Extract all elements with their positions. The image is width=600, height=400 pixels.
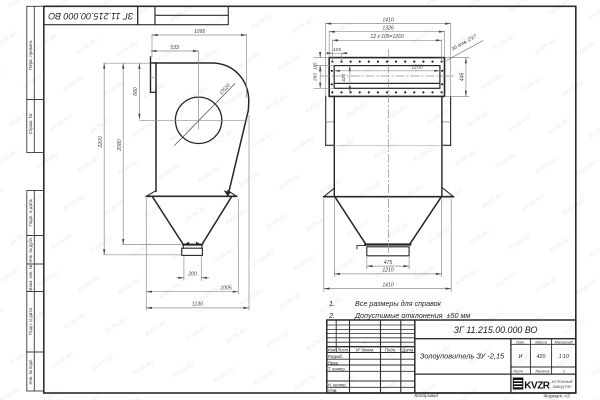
svg-text:КОТЕЛЬНЫЙ: КОТЕЛЬНЫЙ (552, 380, 573, 384)
svg-text:Подп. и дата: Подп. и дата (28, 199, 33, 227)
svg-text:Лист: Лист (512, 369, 524, 374)
svg-text:Формат А3: Формат А3 (543, 393, 570, 399)
svg-text:12 х 105=1260: 12 х 105=1260 (370, 34, 403, 40)
svg-text:Перв. примен.: Перв. примен. (28, 40, 33, 71)
svg-text:1:10: 1:10 (559, 354, 569, 360)
svg-text:446: 446 (459, 73, 465, 82)
svg-text:ЗГ 11.215.00.000 ВО: ЗГ 11.215.00.000 ВО (454, 325, 538, 335)
svg-text:1.: 1. (329, 299, 335, 308)
svg-text:KVZR: KVZR (524, 380, 551, 391)
svg-text:Утв.: Утв. (328, 388, 338, 393)
svg-text:320: 320 (341, 74, 347, 82)
svg-text:Т. контр.: Т. контр. (328, 367, 346, 372)
svg-text:Подп.: Подп. (385, 347, 396, 352)
svg-text:1200: 1200 (411, 65, 422, 71)
svg-text:1410: 1410 (382, 282, 393, 288)
svg-text:ЗГ 11.215.00.000 ВО: ЗГ 11.215.00.000 ВО (48, 11, 133, 21)
svg-text:Лит.: Лит. (515, 339, 525, 344)
svg-text:Инв. № подл.: Инв. № подл. (28, 358, 33, 384)
svg-text:Золоуловитель ЗУ -2,15: Золоуловитель ЗУ -2,15 (420, 352, 505, 361)
svg-text:200: 200 (187, 271, 197, 277)
svg-text:1326: 1326 (382, 26, 393, 32)
svg-text:Лист: Лист (336, 347, 348, 352)
svg-text:1005: 1005 (220, 286, 231, 292)
svg-text:Копировал: Копировал (414, 393, 438, 399)
svg-text:Взам. инв. №: Взам. инв. № (28, 264, 33, 290)
svg-text:1130: 1130 (192, 302, 203, 308)
svg-text:2080: 2080 (117, 139, 123, 151)
svg-text:Справ. №: Справ. № (28, 114, 33, 135)
svg-text:115: 115 (312, 62, 318, 70)
svg-text:2200: 2200 (98, 136, 104, 148)
svg-text:Пров.: Пров. (328, 360, 339, 365)
svg-text:660: 660 (133, 87, 139, 96)
svg-text:Н. контр.: Н. контр. (328, 382, 347, 387)
svg-text:И: И (519, 354, 523, 360)
svg-text:ЗАВОД РЭП: ЗАВОД РЭП (553, 385, 573, 389)
svg-text:Разраб.: Разраб. (328, 354, 343, 359)
svg-text:105: 105 (333, 47, 341, 53)
svg-text:1410: 1410 (382, 17, 393, 23)
svg-text:1210: 1210 (382, 268, 393, 274)
svg-text:Листов: Листов (534, 369, 549, 374)
svg-text:1: 1 (563, 369, 565, 374)
svg-text:260: 260 (312, 73, 318, 82)
svg-text:Допустимые отклонения ±50 мм: Допустимые отклонения ±50 мм (354, 311, 470, 320)
svg-text:1095: 1095 (194, 29, 205, 35)
svg-text:533: 533 (170, 45, 179, 51)
svg-text:420: 420 (537, 354, 546, 360)
svg-text:Инв. № дубл.: Инв. № дубл. (28, 237, 33, 263)
svg-text:Масштаб: Масштаб (555, 339, 574, 344)
svg-text:Изм: Изм (328, 347, 336, 352)
svg-text:Все размеры для справок: Все размеры для справок (355, 299, 442, 308)
svg-text:475: 475 (384, 260, 393, 266)
svg-text:Подп. и дата: Подп. и дата (28, 308, 33, 336)
svg-text:2.: 2. (328, 311, 335, 320)
svg-text:N° докум.: N° докум. (356, 347, 375, 352)
svg-text:Дата: Дата (401, 347, 414, 352)
svg-text:Масса: Масса (535, 339, 547, 344)
